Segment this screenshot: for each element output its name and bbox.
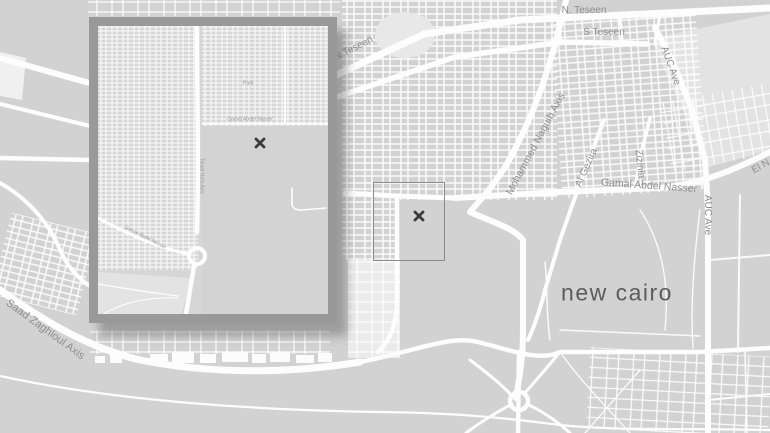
inset-light-area [98,272,190,314]
map-canvas[interactable]: N. Teseen S Teseen N Teseen AUC Ave AUC … [0,0,770,433]
inset-viewport-rectangle [373,182,445,261]
inset-map-graphic [98,26,328,314]
inset-map: Talaat Harb Axis Gamal Abdel Nasser Gama… [89,17,337,323]
inset-empty-plot [202,126,328,314]
